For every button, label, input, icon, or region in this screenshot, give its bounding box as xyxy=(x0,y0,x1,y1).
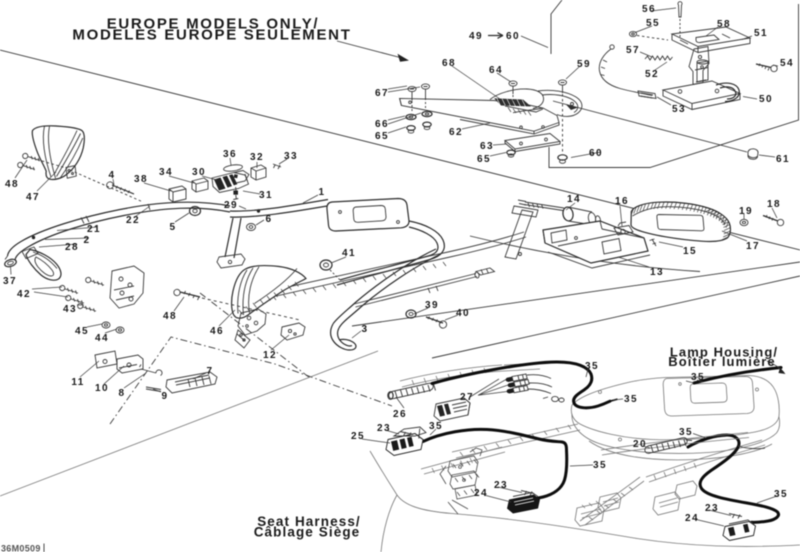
svg-text:27: 27 xyxy=(460,392,474,403)
svg-text:35: 35 xyxy=(585,361,599,372)
svg-text:60: 60 xyxy=(506,31,520,42)
svg-text:12: 12 xyxy=(263,350,277,361)
svg-text:26: 26 xyxy=(393,409,407,420)
svg-text:23: 23 xyxy=(705,503,719,514)
svg-text:54: 54 xyxy=(780,58,794,69)
svg-text:35: 35 xyxy=(429,421,443,432)
svg-text:61: 61 xyxy=(776,154,790,165)
svg-text:58: 58 xyxy=(717,19,731,30)
svg-text:45: 45 xyxy=(75,326,89,337)
svg-text:63: 63 xyxy=(480,141,494,152)
svg-text:30: 30 xyxy=(192,167,206,178)
svg-text:MODELES EUROPE SEULEMENT: MODELES EUROPE SEULEMENT xyxy=(72,27,351,44)
svg-text:5: 5 xyxy=(170,222,177,233)
svg-text:37: 37 xyxy=(3,276,17,287)
svg-text:35: 35 xyxy=(774,489,788,500)
svg-text:36M0509: 36M0509 xyxy=(1,544,41,552)
svg-text:8: 8 xyxy=(119,388,126,399)
svg-text:13: 13 xyxy=(650,267,664,278)
svg-text:66: 66 xyxy=(375,119,389,130)
svg-text:21: 21 xyxy=(87,224,101,235)
svg-text:42: 42 xyxy=(17,289,31,300)
svg-text:24: 24 xyxy=(685,513,699,524)
svg-text:43: 43 xyxy=(63,304,77,315)
svg-text:14: 14 xyxy=(567,194,581,205)
svg-text:33: 33 xyxy=(284,151,298,162)
svg-text:9: 9 xyxy=(162,391,169,402)
svg-text:52: 52 xyxy=(645,69,659,80)
svg-text:35: 35 xyxy=(593,460,607,471)
svg-text:48: 48 xyxy=(163,311,177,322)
svg-text:35: 35 xyxy=(624,394,638,405)
svg-text:3: 3 xyxy=(362,324,369,335)
svg-text:50: 50 xyxy=(759,94,773,105)
svg-text:20: 20 xyxy=(633,439,647,450)
svg-text:41: 41 xyxy=(342,248,356,259)
svg-text:4: 4 xyxy=(109,170,116,181)
svg-text:62: 62 xyxy=(449,127,463,138)
svg-text:24: 24 xyxy=(474,488,488,499)
svg-text:34: 34 xyxy=(159,167,173,178)
svg-text:17: 17 xyxy=(746,241,760,252)
svg-text:51: 51 xyxy=(754,28,768,39)
svg-text:6: 6 xyxy=(266,214,273,225)
svg-text:55: 55 xyxy=(646,18,660,29)
svg-text:46: 46 xyxy=(210,326,224,337)
svg-text:35: 35 xyxy=(691,372,705,383)
svg-text:Boîtier lumière: Boîtier lumière xyxy=(668,354,776,369)
svg-text:65: 65 xyxy=(477,154,491,165)
svg-text:19: 19 xyxy=(739,206,753,217)
svg-text:29: 29 xyxy=(224,200,238,211)
svg-text:36: 36 xyxy=(223,149,237,160)
svg-text:25: 25 xyxy=(351,431,365,442)
svg-text:60: 60 xyxy=(589,148,603,159)
svg-text:1: 1 xyxy=(319,187,326,198)
svg-text:15: 15 xyxy=(683,246,697,257)
svg-text:44: 44 xyxy=(95,333,109,344)
svg-text:22: 22 xyxy=(126,215,140,226)
svg-text:40: 40 xyxy=(456,308,470,319)
svg-text:47: 47 xyxy=(26,192,40,203)
svg-text:7: 7 xyxy=(207,366,214,377)
svg-text:49: 49 xyxy=(469,31,483,42)
svg-text:56: 56 xyxy=(642,4,656,15)
svg-text:38: 38 xyxy=(134,174,148,185)
svg-text:Câblage Siège: Câblage Siège xyxy=(254,525,361,540)
svg-text:10: 10 xyxy=(95,383,109,394)
svg-text:68: 68 xyxy=(442,58,456,69)
svg-text:16: 16 xyxy=(615,196,629,207)
svg-text:23: 23 xyxy=(494,480,508,491)
svg-text:31: 31 xyxy=(259,190,273,201)
svg-text:28: 28 xyxy=(65,242,79,253)
svg-text:11: 11 xyxy=(71,377,84,388)
svg-text:65: 65 xyxy=(375,131,389,142)
svg-text:35: 35 xyxy=(679,427,693,438)
svg-text:39: 39 xyxy=(425,300,439,311)
svg-text:2: 2 xyxy=(84,235,91,246)
svg-text:67: 67 xyxy=(375,88,389,99)
svg-text:48: 48 xyxy=(5,179,19,190)
svg-text:18: 18 xyxy=(767,199,781,210)
svg-text:64: 64 xyxy=(489,65,503,76)
svg-text:59: 59 xyxy=(577,59,591,70)
svg-text:57: 57 xyxy=(626,45,640,56)
svg-text:32: 32 xyxy=(250,152,264,163)
svg-text:23: 23 xyxy=(377,423,391,434)
svg-text:53: 53 xyxy=(672,104,686,115)
